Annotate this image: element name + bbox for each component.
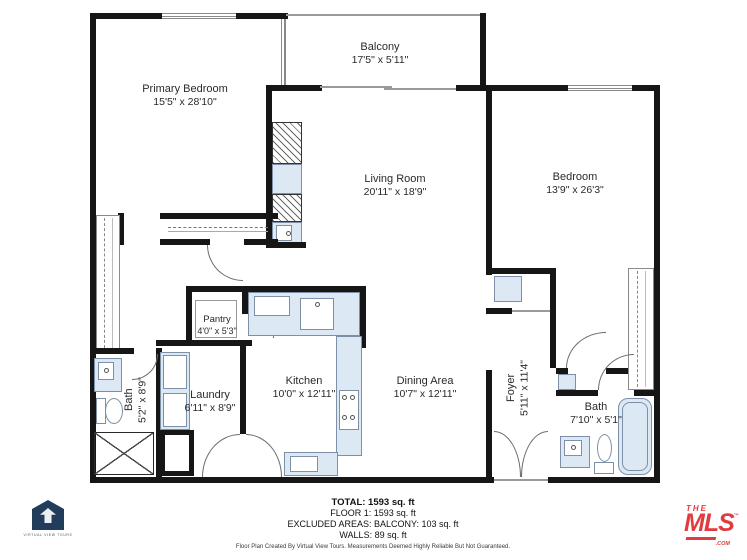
room-dims: 10'7" x 12'11" [366,388,484,402]
wall [266,85,322,91]
room-dims: 4'0" x 5'3" [188,326,246,338]
room-name: Bath [552,400,640,414]
floor-area: FLOOR 1: 1593 sq. ft [173,508,573,519]
area-summary: TOTAL: 1593 sq. ft FLOOR 1: 1593 sq. ft … [173,497,573,541]
wall [156,340,252,346]
room-name: Bath [122,356,136,444]
closet-opening-line [512,310,550,312]
walls-area: WALLS: 89 sq. ft [173,530,573,541]
door-arc [566,332,606,368]
foyer-label: Foyer 5'11" x 11'4" [504,340,532,436]
linen-closet [558,374,576,390]
wall [160,239,210,245]
mls-com-text: .COM [684,541,730,547]
toilet-tank [594,462,614,474]
wall [556,390,598,396]
closet-rod-line [168,227,268,228]
room-name: Foyer [504,340,518,436]
excluded-areas: EXCLUDED AREAS: BALCONY: 103 sq. ft [173,519,573,530]
wardrobe-door-line [104,218,105,348]
room-dims: 6'11" x 8'9" [166,402,254,416]
balcony-railing-line [286,14,482,16]
faucet-dot [104,368,109,373]
mls-main-row: MLS™ [684,513,746,536]
pantry-label: Pantry 4'0" x 5'3" [188,314,246,338]
door-arc [207,245,243,281]
toilet-bowl [597,434,612,462]
room-name: Primary Bedroom [105,82,265,96]
laundry-label: Laundry 6'11" x 8'9" [166,388,254,416]
wall [486,85,492,275]
total-area: TOTAL: 1593 sq. ft [173,497,573,508]
room-name: Dining Area [366,374,484,388]
wardrobe-door-line [645,271,646,387]
burner [350,415,355,420]
bedroom-label: Bedroom 13'9" x 26'3" [500,170,650,198]
virtual-view-tours-text: VIRTUAL VIEW TOURS [12,533,84,537]
room-dims: 15'5" x 28'10" [105,96,265,110]
closet [160,430,194,476]
sliding-door-line [384,88,458,90]
room-dims: 20'11" x 18'9" [320,186,470,200]
closet-shelf-box [494,276,522,302]
room-name: Kitchen [250,374,358,388]
dining-area-label: Dining Area 10'7" x 12'11" [366,374,484,402]
room-dims: 5'11" x 11'4" [518,340,532,436]
wall [186,286,248,292]
bath-left-label: Bath 5'2" x 8'9" [122,356,148,444]
primary-bedroom-label: Primary Bedroom 15'5" x 28'10" [105,82,265,110]
window [281,19,286,85]
wall [486,268,556,274]
room-name: Bedroom [500,170,650,184]
room-dims: 7'10" x 5'1" [552,414,640,428]
wall [456,85,568,91]
sliding-door-line [320,86,392,88]
wall [244,239,278,245]
house-icon [32,500,64,530]
mls-trademark: ™ [734,513,739,519]
closet-shelf-line [168,231,268,232]
faucet-dot [286,231,291,236]
mls-logo: THE MLS™ .COM [684,504,746,547]
room-name: Living Room [320,172,470,186]
virtual-view-tours-logo: VIRTUAL VIEW TOURS [12,500,84,537]
faucet-dot [315,302,320,307]
mls-main-text: MLS [684,509,734,537]
wall [160,213,278,219]
wall [654,85,660,483]
wall [90,477,494,483]
bath-right-label: Bath 7'10" x 5'1" [552,400,640,428]
room-dims: 13'9" x 26'3" [500,184,650,198]
room-name: Pantry [188,314,246,326]
french-door-arc [521,431,548,477]
faucet-dot [571,445,576,450]
room-name: Laundry [166,388,254,402]
balcony-label: Balcony 17'5" x 5'11" [310,40,450,68]
door-arc [202,434,240,477]
wall [548,477,660,483]
washer [163,355,187,389]
wardrobe-door-line [112,218,113,348]
entry-threshold-line [494,479,548,481]
living-room-label: Living Room 20'11" x 18'9" [320,172,470,200]
wall [486,370,492,477]
credit-line: Floor Plan Created By Virtual View Tours… [123,544,623,550]
wall [632,85,660,91]
room-dims: 10'0" x 12'11" [250,388,358,402]
mls-underline [686,537,717,540]
wall [480,13,486,91]
room-name: Balcony [310,40,450,54]
room-dims: 17'5" x 5'11" [310,54,450,68]
burner [342,415,347,420]
wall [486,308,512,314]
fireplace-hatch [272,122,302,164]
door-arc [246,434,282,477]
wardrobe-closet [96,215,120,351]
kitchen-cabinet [254,296,290,316]
wall [550,268,556,368]
window [568,85,634,91]
wall [90,348,134,354]
window [162,13,236,19]
wardrobe-door-line [637,271,638,387]
wall [634,390,660,396]
kitchen-appliance [290,456,318,472]
toilet-bowl [105,398,123,424]
room-dims: 5'2" x 8'9" [136,356,150,444]
french-door-arc [494,431,521,477]
floor-plan-canvas: Primary Bedroom 15'5" x 28'10" Balcony 1… [0,0,747,560]
fireplace-box [272,164,302,194]
kitchen-label: Kitchen 10'0" x 12'11" [250,374,358,402]
